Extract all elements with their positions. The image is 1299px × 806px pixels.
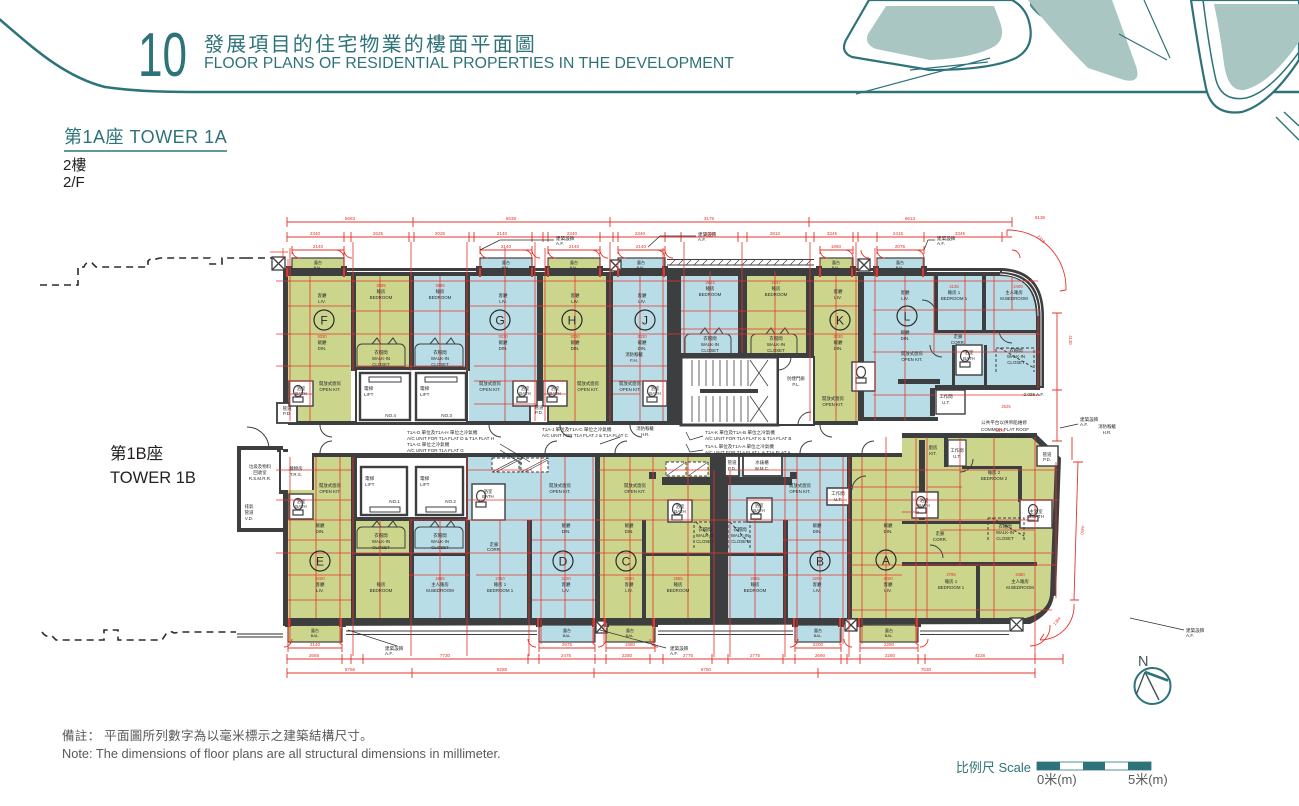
svg-text:BATH: BATH [519, 391, 530, 396]
svg-text:客廳: 客廳 [318, 292, 327, 299]
svg-text:衣帽間: 衣帽間 [374, 349, 388, 356]
svg-text:6750: 6750 [701, 667, 712, 672]
svg-text:D: D [559, 555, 568, 569]
svg-text:第1B座: 第1B座 [110, 444, 163, 463]
svg-text:3200: 3200 [561, 576, 571, 581]
svg-text:客廳: 客廳 [813, 581, 822, 588]
svg-text:客廳: 客廳 [571, 292, 580, 299]
svg-text:2625: 2625 [373, 231, 384, 236]
svg-text:2400: 2400 [1013, 284, 1023, 289]
svg-text:TOWER 1B: TOWER 1B [110, 469, 196, 487]
svg-text:客廳: 客廳 [562, 581, 571, 588]
svg-text:LIFT: LIFT [420, 482, 430, 487]
svg-text:睡房: 睡房 [674, 581, 683, 588]
svg-text:水錶櫃: 水錶櫃 [755, 459, 769, 466]
svg-text:衣帽間: 衣帽間 [433, 532, 447, 539]
svg-text:BAL.: BAL. [885, 633, 894, 638]
svg-text:BATH: BATH [482, 494, 493, 499]
svg-text:LIV.: LIV. [316, 588, 323, 593]
svg-text:飯廳: 飯廳 [562, 522, 571, 529]
svg-text:LIV.: LIV. [901, 296, 908, 301]
svg-text:飯廳: 飯廳 [625, 522, 634, 529]
svg-text:睡房 1: 睡房 1 [948, 289, 961, 296]
svg-text:衣帽間: 衣帽間 [433, 349, 447, 356]
svg-text:M.BEDROOM: M.BEDROOM [426, 588, 454, 593]
svg-text:衣帽間: 衣帽間 [1009, 347, 1023, 354]
svg-text:2340: 2340 [635, 231, 646, 236]
svg-text:2200: 2200 [813, 642, 824, 647]
svg-text:6613: 6613 [905, 216, 916, 221]
svg-text:DIN.: DIN. [562, 529, 571, 534]
svg-text:COMMON FLAT ROOF: COMMON FLAT ROOF [981, 427, 1029, 432]
svg-text:H.R.: H.R. [1103, 430, 1112, 435]
svg-text:2685: 2685 [435, 576, 445, 581]
svg-text:F.H.: F.H. [630, 358, 638, 363]
svg-text:客廳: 客廳 [316, 581, 325, 588]
svg-text:2685: 2685 [750, 576, 760, 581]
svg-text:垃圾及物料: 垃圾及物料 [249, 463, 272, 470]
svg-text:3200: 3200 [315, 576, 325, 581]
svg-text:DIN.: DIN. [638, 346, 647, 351]
svg-text:排氣: 排氣 [245, 503, 254, 510]
svg-text:T1A-G 單位之冷氣機: T1A-G 單位之冷氣機 [407, 441, 450, 448]
svg-text:3030: 3030 [317, 334, 327, 339]
svg-text:WALK-IN: WALK-IN [701, 342, 719, 347]
svg-text:4228: 4228 [975, 653, 986, 658]
svg-text:2140: 2140 [310, 642, 321, 647]
svg-text:3175: 3175 [704, 216, 715, 221]
svg-text:A.F.: A.F. [698, 237, 706, 242]
svg-text:7630: 7630 [921, 667, 932, 672]
svg-text:2795: 2795 [946, 572, 956, 577]
svg-text:飯廳: 飯廳 [499, 339, 508, 346]
svg-text:消防喉轆: 消防喉轆 [1098, 423, 1116, 430]
svg-text:DIN.: DIN. [625, 529, 634, 534]
svg-text:NO.2: NO.2 [445, 499, 456, 504]
svg-text:A.F.: A.F. [385, 651, 393, 656]
svg-text:2140: 2140 [569, 244, 580, 249]
svg-text:F: F [320, 314, 327, 328]
svg-text:A.F.: A.F. [670, 651, 678, 656]
svg-text:OPEN KIT.: OPEN KIT. [479, 387, 500, 392]
svg-text:A/C UNIT FOR T1A FLAT K & T1A: A/C UNIT FOR T1A FLAT K & T1A FLAT B [705, 436, 791, 441]
svg-text:P.D.: P.D. [1043, 457, 1051, 462]
svg-text:WALK-IN: WALK-IN [431, 539, 449, 544]
svg-text:DIN.: DIN. [813, 529, 822, 534]
svg-text:比例尺 Scale: 比例尺 Scale [956, 760, 1031, 775]
svg-text:睡房: 睡房 [377, 288, 386, 295]
svg-text:CLOSET: CLOSET [431, 362, 449, 367]
svg-text:E: E [316, 555, 324, 569]
svg-text:J: J [642, 314, 648, 328]
svg-text:OPEN KIT.: OPEN KIT. [319, 387, 340, 392]
svg-text:A.F.: A.F. [1080, 422, 1088, 427]
svg-text:BEDROOM: BEDROOM [765, 292, 788, 297]
svg-text:U.T.: U.T. [834, 497, 842, 502]
svg-text:BAL.: BAL. [563, 633, 572, 638]
svg-text:BATH: BATH [549, 391, 560, 396]
svg-text:3200: 3200 [812, 576, 822, 581]
svg-text:T1A-K 單位及T1A-B 單位之冷氣機: T1A-K 單位及T1A-B 單位之冷氣機 [705, 429, 775, 436]
svg-text:BEDROOM: BEDROOM [370, 588, 393, 593]
svg-text:BATH: BATH [918, 503, 929, 508]
svg-text:BATH: BATH [649, 391, 660, 396]
svg-text:CORR.: CORR. [951, 340, 965, 345]
svg-text:OPEN KIT.: OPEN KIT. [549, 489, 570, 494]
svg-text:CLOSET: CLOSET [701, 348, 719, 353]
svg-text:OPEN KIT.: OPEN KIT. [319, 489, 340, 494]
svg-text:BAL.: BAL. [832, 265, 841, 270]
svg-text:WALK-IN: WALK-IN [696, 533, 714, 538]
svg-text:客廳: 客廳 [884, 581, 893, 588]
svg-text:DIN.: DIN. [834, 346, 843, 351]
svg-text:W.M.C.: W.M.C. [755, 466, 769, 471]
svg-text:7730: 7730 [440, 653, 451, 658]
svg-text:電梯: 電梯 [365, 475, 375, 482]
svg-text:工作間: 工作間 [950, 447, 964, 454]
svg-text:8288: 8288 [497, 667, 508, 672]
svg-text:2847: 2847 [771, 280, 781, 285]
svg-text:3480: 3480 [1015, 572, 1025, 577]
svg-text:A.F.: A.F. [556, 241, 564, 246]
svg-text:2140: 2140 [636, 244, 647, 249]
svg-text:WALK-IN: WALK-IN [731, 533, 749, 538]
svg-text:KIT.: KIT. [929, 451, 937, 456]
svg-text:3345: 3345 [955, 231, 966, 236]
svg-text:U.T.: U.T. [953, 454, 961, 459]
svg-text:電梯: 電梯 [420, 475, 430, 482]
svg-text:飯廳: 飯廳 [316, 522, 325, 529]
svg-text:T1A-L 單位及T1A-A 單位之冷氣機: T1A-L 單位及T1A-A 單位之冷氣機 [705, 443, 774, 450]
svg-text:BEDROOM: BEDROOM [370, 295, 393, 300]
svg-text:L: L [904, 310, 911, 324]
svg-text:ACCESS BY GONDOLA: ACCESS BY GONDOLA [981, 434, 1032, 439]
svg-text:1880: 1880 [625, 642, 636, 647]
svg-text:發展項目的住宅物業的樓面平面圖: 發展項目的住宅物業的樓面平面圖 [204, 33, 537, 56]
svg-text:雜物房: 雜物房 [289, 465, 303, 472]
svg-text:BEDROOM: BEDROOM [429, 295, 452, 300]
svg-text:開放式廚房: 開放式廚房 [789, 482, 812, 489]
svg-text:備註： 平面圖所列數字為以毫米標示之建築結構尺寸。: 備註： 平面圖所列數字為以毫米標示之建築結構尺寸。 [62, 728, 373, 743]
svg-text:CORR.: CORR. [933, 537, 947, 542]
svg-text:管道: 管道 [728, 459, 737, 466]
svg-text:睡房: 睡房 [772, 285, 781, 292]
svg-text:OPEN KIT.: OPEN KIT. [577, 387, 598, 392]
svg-text:DIN.: DIN. [318, 346, 327, 351]
svg-text:消防喉轆: 消防喉轆 [636, 425, 654, 432]
svg-text:2340: 2340 [310, 231, 321, 236]
svg-text:飯廳: 飯廳 [638, 339, 647, 346]
svg-text:2075: 2075 [895, 244, 906, 249]
svg-text:CLOSET: CLOSET [767, 348, 785, 353]
svg-text:A: A [882, 554, 890, 568]
svg-text:5663: 5663 [345, 216, 356, 221]
svg-text:飯廳: 飯廳 [318, 339, 327, 346]
svg-text:3200: 3200 [624, 576, 634, 581]
svg-text:3030: 3030 [833, 334, 843, 339]
svg-text:廚房: 廚房 [929, 444, 938, 451]
svg-text:LIV.: LIV. [562, 588, 569, 593]
svg-text:C: C [622, 555, 631, 569]
svg-text:CLOSET: CLOSET [1007, 360, 1025, 365]
svg-text:OPEN KIT.: OPEN KIT. [789, 489, 810, 494]
svg-text:5米(m): 5米(m) [1128, 772, 1168, 787]
svg-text:客廳: 客廳 [834, 288, 843, 295]
svg-text:2810: 2810 [770, 231, 781, 236]
svg-text:3345: 3345 [827, 231, 838, 236]
svg-text:BATH: BATH [674, 509, 685, 514]
svg-text:2140: 2140 [497, 231, 508, 236]
svg-text:NO.1: NO.1 [389, 499, 400, 504]
svg-text:6756: 6756 [345, 667, 356, 672]
svg-text:衣帽間: 衣帽間 [733, 526, 747, 533]
svg-text:回收室: 回收室 [253, 469, 267, 476]
svg-text:2340: 2340 [567, 231, 578, 236]
svg-text:睡房 1: 睡房 1 [945, 578, 958, 585]
svg-text:3200: 3200 [883, 576, 893, 581]
svg-text:BAL.: BAL. [814, 633, 823, 638]
svg-text:LIV.: LIV. [834, 295, 841, 300]
svg-text:K: K [836, 314, 844, 328]
svg-text:BAL.: BAL. [502, 265, 511, 270]
svg-text:3030: 3030 [637, 334, 647, 339]
svg-text:G: G [495, 314, 504, 328]
svg-text:OPEN KIT.: OPEN KIT. [822, 402, 843, 407]
svg-text:NO.3: NO.3 [441, 413, 452, 418]
svg-text:P.D.: P.D. [728, 466, 736, 471]
svg-text:T1A-J 單位及T1A-C 單位之冷氣機: T1A-J 單位及T1A-C 單位之冷氣機 [542, 426, 612, 433]
svg-text:2025: 2025 [435, 231, 446, 236]
svg-text:DIN.: DIN. [499, 346, 508, 351]
svg-text:飯廳: 飯廳 [834, 339, 843, 346]
svg-text:LIFT: LIFT [364, 392, 374, 397]
svg-text:睡房: 睡房 [706, 285, 715, 292]
svg-text:2675: 2675 [562, 642, 573, 647]
svg-text:BEDROOM 1: BEDROOM 1 [941, 296, 968, 301]
svg-text:M.BEDROOM: M.BEDROOM [1000, 296, 1028, 301]
svg-text:飯廳: 飯廳 [884, 522, 893, 529]
svg-text:R.S.M.R.R.: R.S.M.R.R. [249, 476, 271, 481]
svg-text:3685: 3685 [435, 283, 445, 288]
svg-text:1364: 1364 [1052, 615, 1062, 626]
svg-text:飯廳: 飯廳 [813, 522, 822, 529]
svg-text:2280: 2280 [884, 642, 895, 647]
svg-text:U.T.: U.T. [942, 400, 950, 405]
svg-text:2280: 2280 [622, 653, 633, 658]
svg-text:A.F.: A.F. [937, 241, 945, 246]
svg-text:開放式廚房: 開放式廚房 [822, 395, 845, 402]
svg-text:BEDROOM: BEDROOM [667, 588, 690, 593]
svg-text:P.D.: P.D. [283, 411, 291, 416]
svg-text:BATH: BATH [963, 356, 974, 361]
svg-text:10: 10 [138, 21, 187, 90]
svg-text:CLOSET: CLOSET [996, 536, 1014, 541]
svg-text:WALK-IN: WALK-IN [372, 356, 390, 361]
svg-text:2/F: 2/F [63, 174, 85, 191]
svg-text:T1A-D 單位及T1A-H 單位之冷氣機: T1A-D 單位及T1A-H 單位之冷氣機 [407, 429, 478, 436]
svg-text:BEDROOM 2: BEDROOM 2 [981, 476, 1008, 481]
svg-text:BEDROOM: BEDROOM [744, 588, 767, 593]
svg-text:DIN.: DIN. [884, 529, 893, 534]
svg-text:LIFT: LIFT [365, 482, 375, 487]
svg-text:N: N [1138, 654, 1148, 670]
svg-text:2樓: 2樓 [63, 157, 86, 174]
svg-text:A/C UNIT FOR T1A FLAT D & T1A: A/C UNIT FOR T1A FLAT D & T1A FLAT H [407, 436, 494, 441]
svg-text:WALK-IN: WALK-IN [431, 356, 449, 361]
svg-text:睡房: 睡房 [436, 288, 445, 295]
svg-text:2475: 2475 [561, 653, 572, 658]
svg-text:浴室: 浴室 [965, 349, 974, 356]
svg-text:LIV.: LIV. [318, 299, 325, 304]
svg-text:電梯: 電梯 [420, 385, 430, 392]
svg-text:走廊: 走廊 [954, 333, 963, 340]
svg-text:主人睡房: 主人睡房 [1011, 578, 1029, 585]
svg-text:2140: 2140 [501, 244, 512, 249]
svg-text:走廊: 走廊 [936, 530, 945, 537]
svg-text:LIV.: LIV. [813, 588, 820, 593]
svg-text:P.D.: P.D. [535, 410, 543, 415]
svg-text:消防喉轆: 消防喉轆 [625, 351, 643, 358]
svg-text:衣帽間: 衣帽間 [698, 526, 712, 533]
svg-text:BAL.: BAL. [637, 265, 646, 270]
svg-text:客廳: 客廳 [499, 292, 508, 299]
svg-text:衣帽間: 衣帽間 [998, 523, 1012, 530]
svg-text:-2.025 A.F.: -2.025 A.F. [1022, 392, 1044, 397]
svg-text:衣帽間: 衣帽間 [703, 335, 717, 342]
svg-text:2775: 2775 [683, 653, 694, 658]
svg-text:公共平台以供吊船維修: 公共平台以供吊船維修 [981, 419, 1027, 426]
svg-text:WALK-IN: WALK-IN [767, 342, 785, 347]
svg-text:飯廳: 飯廳 [571, 339, 580, 346]
svg-text:開放式廚房: 開放式廚房 [577, 380, 600, 387]
svg-text:S.BATH: S.BATH [1028, 514, 1044, 519]
svg-text:BATH: BATH [295, 391, 306, 396]
svg-text:OPEN KIT.: OPEN KIT. [619, 387, 640, 392]
svg-text:防煙門廊: 防煙門廊 [787, 375, 805, 382]
svg-text:工作間: 工作間 [831, 490, 845, 497]
svg-text:開放式廚房: 開放式廚房 [624, 482, 647, 489]
svg-text:客廳: 客廳 [638, 292, 647, 299]
svg-text:開放式廚房: 開放式廚房 [619, 380, 642, 387]
svg-text:BATH: BATH [295, 504, 306, 509]
svg-text:LIV.: LIV. [638, 299, 645, 304]
svg-text:NO.4: NO.4 [385, 413, 396, 418]
svg-text:開放式廚房: 開放式廚房 [319, 482, 342, 489]
svg-text:LIV.: LIV. [625, 588, 632, 593]
svg-text:BAL.: BAL. [314, 265, 323, 270]
svg-text:2665: 2665 [309, 653, 320, 658]
svg-text:2525: 2525 [1001, 404, 1011, 409]
svg-text:Note: The dimensions of floor: Note: The dimensions of floor plans are … [62, 746, 501, 761]
svg-text:T.R.S.: T.R.S. [290, 472, 302, 477]
svg-text:CORR.: CORR. [487, 547, 501, 552]
svg-text:2135: 2135 [949, 284, 959, 289]
svg-text:3030: 3030 [570, 334, 580, 339]
svg-text:3030: 3030 [498, 334, 508, 339]
svg-text:CLOSET: CLOSET [372, 545, 390, 550]
svg-text:OPEN KIT.: OPEN KIT. [624, 489, 645, 494]
svg-text:開放式廚房: 開放式廚房 [319, 380, 342, 387]
svg-text:睡房 2: 睡房 2 [988, 469, 1001, 476]
svg-text:CLOSET: CLOSET [731, 539, 749, 544]
svg-text:4130: 4130 [1068, 335, 1073, 345]
svg-text:管道: 管道 [245, 509, 254, 516]
svg-text:開放式廚房: 開放式廚房 [549, 482, 572, 489]
svg-text:開放式廚房: 開放式廚房 [901, 350, 924, 357]
svg-text:P.L.: P.L. [792, 382, 799, 387]
svg-text:工作間: 工作間 [939, 393, 953, 400]
svg-text:客廳: 客廳 [625, 581, 634, 588]
svg-text:BAL.: BAL. [311, 633, 320, 638]
svg-text:A.F.: A.F. [1186, 633, 1194, 638]
svg-text:A/C UNIT FOR T1A FLAT G: A/C UNIT FOR T1A FLAT G [407, 448, 464, 453]
svg-text:V.D.: V.D. [245, 516, 253, 521]
svg-text:4450: 4450 [1079, 525, 1085, 535]
svg-text:BEDROOM: BEDROOM [699, 292, 722, 297]
svg-text:M.BEDROOM: M.BEDROOM [1006, 585, 1034, 590]
svg-text:2685: 2685 [673, 576, 683, 581]
svg-text:LIV.: LIV. [571, 299, 578, 304]
svg-text:0米(m): 0米(m) [1037, 772, 1077, 787]
svg-text:LIV.: LIV. [884, 588, 891, 593]
svg-text:A/C UNIT FOR T1A FLAT L & T1A: A/C UNIT FOR T1A FLAT L & T1A FLAT A [705, 450, 791, 455]
svg-text:DIN.: DIN. [901, 336, 910, 341]
svg-text:3674: 3674 [995, 428, 1005, 433]
svg-text:主人睡房: 主人睡房 [1005, 289, 1023, 296]
svg-text:BAL.: BAL. [896, 265, 905, 270]
svg-text:DIN.: DIN. [571, 346, 580, 351]
svg-text:衣帽間: 衣帽間 [374, 532, 388, 539]
svg-text:WALK-IN: WALK-IN [1007, 354, 1025, 359]
svg-text:主人睡房: 主人睡房 [431, 581, 449, 588]
svg-text:開放式廚房: 開放式廚房 [479, 380, 502, 387]
svg-text:B: B [816, 555, 824, 569]
svg-text:飯廳: 飯廳 [901, 329, 910, 336]
svg-text:2350: 2350 [495, 576, 505, 581]
svg-text:睡房: 睡房 [751, 581, 760, 588]
svg-text:2055: 2055 [705, 231, 716, 236]
svg-text:CLOSET: CLOSET [372, 362, 390, 367]
svg-text:A/C UNIT FOR T1A FLAT J & T1A: A/C UNIT FOR T1A FLAT J & T1A FLAT C [542, 433, 629, 438]
svg-text:衣帽間: 衣帽間 [769, 335, 783, 342]
svg-text:第1A座 TOWER 1A: 第1A座 TOWER 1A [64, 127, 227, 147]
svg-text:WALK-IN: WALK-IN [372, 539, 390, 544]
svg-text:LIV.: LIV. [499, 299, 506, 304]
svg-text:2690: 2690 [815, 653, 826, 658]
svg-text:BATH: BATH [753, 508, 764, 513]
svg-text:5638: 5638 [506, 216, 517, 221]
svg-text:睡房: 睡房 [377, 581, 386, 588]
svg-text:3685: 3685 [376, 283, 386, 288]
svg-text:客廳: 客廳 [901, 289, 910, 296]
svg-text:2775: 2775 [750, 653, 761, 658]
svg-text:LIFT: LIFT [420, 392, 430, 397]
svg-text:OPEN KIT.: OPEN KIT. [901, 357, 922, 362]
svg-text:1860: 1860 [831, 244, 842, 249]
svg-text:2280: 2280 [885, 653, 896, 658]
svg-text:H.R.: H.R. [641, 432, 650, 437]
svg-text:DIN.: DIN. [316, 529, 325, 534]
svg-text:2824: 2824 [705, 280, 715, 285]
svg-text:2140: 2140 [313, 244, 324, 249]
svg-text:BAL.: BAL. [570, 265, 579, 270]
svg-text:BEDROOM 1: BEDROOM 1 [938, 585, 965, 590]
svg-text:H: H [568, 314, 577, 328]
svg-text:WALK-IN: WALK-IN [996, 530, 1014, 535]
svg-text:電梯: 電梯 [364, 385, 374, 392]
svg-text:FLOOR PLANS OF RESIDENTIAL PRO: FLOOR PLANS OF RESIDENTIAL PROPERTIES IN… [204, 55, 734, 72]
svg-text:BEDROOM 1: BEDROOM 1 [487, 588, 514, 593]
